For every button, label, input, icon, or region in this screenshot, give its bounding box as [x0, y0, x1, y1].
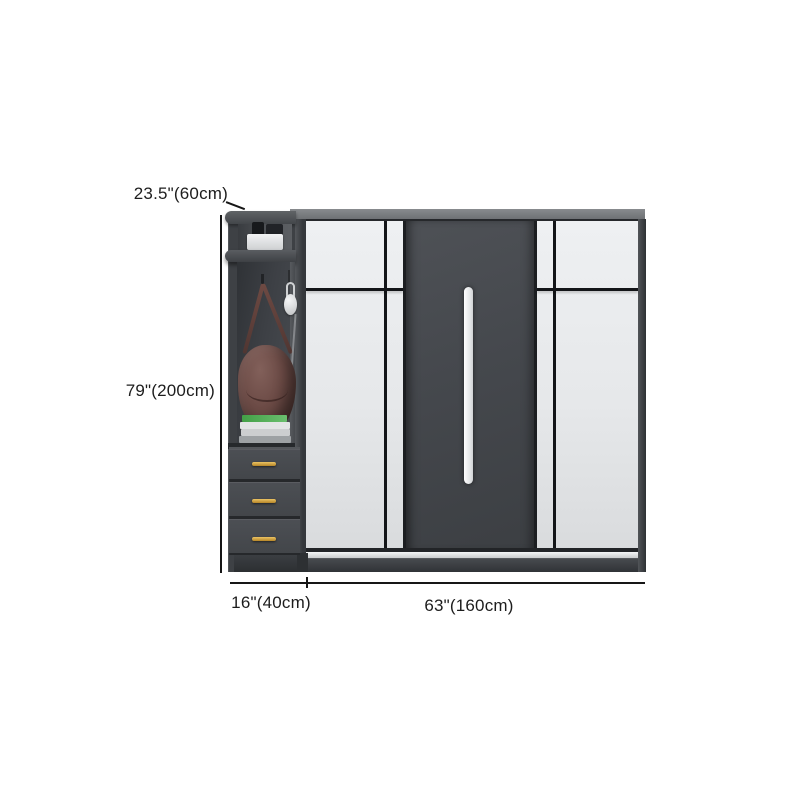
- wardrobe-frame-right: [638, 219, 646, 572]
- white-storage-box: [247, 234, 283, 250]
- side-width-dimension-label: 16"(40cm): [220, 593, 322, 613]
- drawer-handle-gold: [252, 499, 276, 503]
- width-dimension-line: [230, 582, 645, 584]
- book-white: [241, 429, 290, 436]
- side-unit-middle-shelf: [225, 250, 296, 262]
- wardrobe-plinth: [306, 558, 638, 572]
- drawer-bottom: [229, 519, 300, 553]
- drawer-handle-gold: [252, 537, 276, 541]
- headphone-earcup: [284, 294, 297, 315]
- book-green: [242, 415, 287, 422]
- sliding-door-left-white: [306, 221, 403, 551]
- drawer-handle-gold: [252, 462, 276, 466]
- left-door-trim-line-vertical: [384, 221, 387, 551]
- left-door-trim-line-horizontal: [306, 288, 403, 291]
- depth-dimension-label: 23.5"(60cm): [122, 184, 228, 204]
- wardrobe-left-foot: [297, 553, 308, 572]
- right-door-trim-line-horizontal: [537, 288, 638, 291]
- width-dimension-tick: [306, 577, 308, 588]
- wardrobe-top-surface: [290, 209, 645, 221]
- depth-leader-line: [226, 201, 246, 210]
- book-gray: [239, 436, 291, 443]
- height-dimension-line: [220, 215, 222, 573]
- right-door-trim-line-vertical: [553, 221, 556, 551]
- center-door-handle-groove: [464, 287, 473, 484]
- side-unit-plinth: [234, 555, 297, 572]
- product-dimension-image: 23.5"(60cm) 79"(200cm) 16"(40cm) 63"(160…: [0, 0, 800, 800]
- bag-crease-detail: [246, 378, 288, 402]
- height-dimension-label: 79"(200cm): [98, 381, 215, 401]
- book-white: [240, 422, 290, 429]
- main-width-dimension-label: 63"(160cm): [398, 596, 540, 616]
